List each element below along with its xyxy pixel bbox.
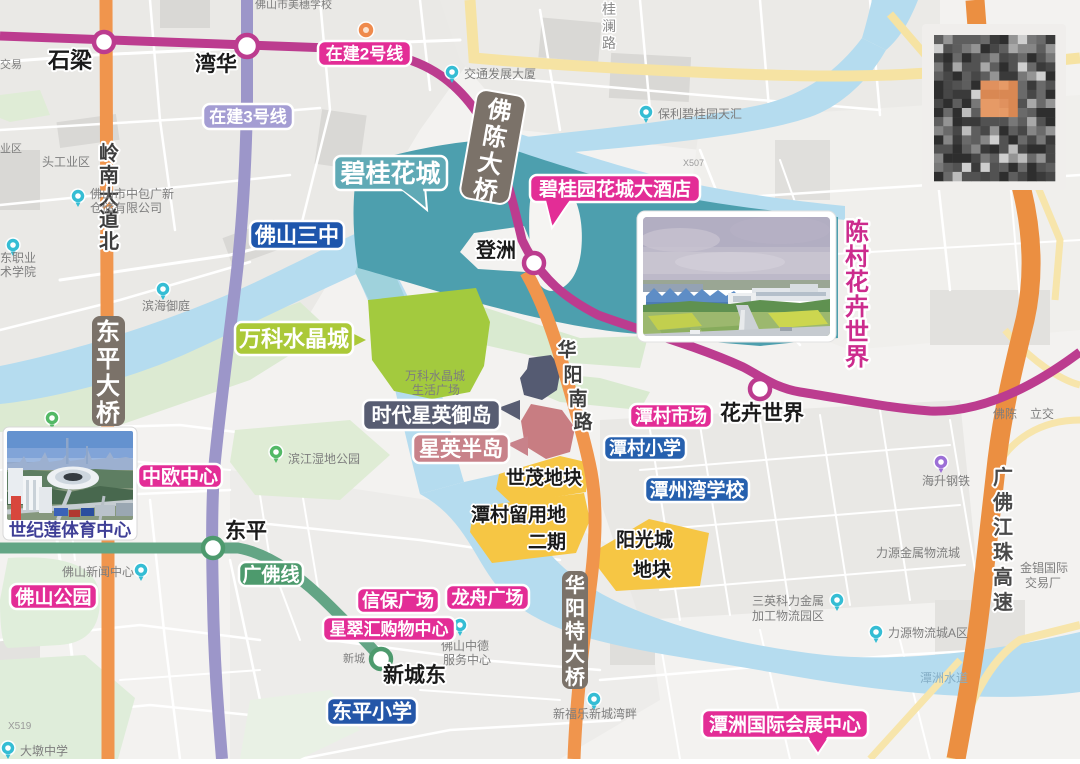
svg-text:交易: 交易 — [0, 57, 22, 71]
svg-text:佛陈: 佛陈 — [993, 406, 1017, 421]
svg-text:佛: 佛 — [992, 491, 1013, 514]
svg-text:阳: 阳 — [563, 364, 582, 386]
svg-text:世: 世 — [845, 319, 869, 346]
svg-text:路: 路 — [573, 410, 593, 433]
svg-text:佛: 佛 — [484, 96, 513, 127]
svg-text:界: 界 — [845, 344, 869, 371]
svg-text:广: 广 — [993, 465, 1013, 489]
svg-text:登洲: 登洲 — [475, 238, 516, 262]
svg-text:潭州湾学校: 潭州湾学校 — [649, 478, 745, 501]
svg-text:东平小学: 东平小学 — [332, 700, 412, 724]
svg-text:速: 速 — [993, 591, 1013, 614]
svg-text:村: 村 — [845, 244, 869, 271]
svg-text:南: 南 — [568, 388, 587, 410]
svg-text:北: 北 — [99, 230, 119, 253]
svg-text:力源物流城A区: 力源物流城A区 — [888, 626, 968, 640]
svg-text:平: 平 — [96, 346, 120, 373]
svg-text:桥: 桥 — [96, 400, 121, 427]
svg-text:佛山市美穗学校: 佛山市美穗学校 — [255, 0, 332, 11]
svg-text:特: 特 — [565, 619, 585, 643]
svg-text:佛山三中: 佛山三中 — [254, 224, 339, 248]
svg-text:时代星英御岛: 时代星英御岛 — [372, 403, 492, 427]
svg-text:三英科力金属: 三英科力金属 — [752, 593, 824, 608]
svg-text:东平: 东平 — [225, 519, 267, 543]
svg-text:潭村市场: 潭村市场 — [635, 405, 707, 426]
svg-text:南: 南 — [99, 164, 119, 187]
svg-text:X507: X507 — [683, 158, 704, 168]
svg-text:业区: 业区 — [0, 142, 22, 155]
svg-text:潭村小学: 潭村小学 — [609, 437, 681, 458]
svg-text:世茂地块: 世茂地块 — [506, 466, 583, 489]
svg-text:湾华: 湾华 — [195, 52, 237, 76]
svg-text:地块: 地块 — [633, 558, 672, 581]
svg-text:交易厂: 交易厂 — [1025, 575, 1061, 590]
svg-text:桥: 桥 — [565, 666, 586, 689]
svg-text:在建3号线: 在建3号线 — [209, 107, 286, 127]
svg-text:大: 大 — [96, 373, 120, 400]
svg-text:龙舟广场: 龙舟广场 — [452, 587, 524, 608]
svg-text:二期: 二期 — [528, 531, 566, 553]
svg-text:碧桂花城: 碧桂花城 — [339, 160, 440, 188]
svg-text:佛山新闻中心: 佛山新闻中心 — [62, 564, 134, 579]
svg-text:X519: X519 — [8, 721, 32, 732]
svg-text:东: 东 — [96, 318, 120, 346]
svg-text:在建2号线: 在建2号线 — [326, 44, 403, 64]
svg-text:金锠国际: 金锠国际 — [1020, 560, 1068, 575]
svg-text:高: 高 — [993, 565, 1013, 589]
svg-text:星翠汇购物中心: 星翠汇购物中心 — [330, 619, 449, 639]
svg-text:陈: 陈 — [845, 218, 869, 246]
svg-text:中欧中心: 中欧中心 — [142, 465, 218, 488]
svg-text:信保广场: 信保广场 — [362, 590, 434, 611]
svg-text:卉: 卉 — [845, 294, 869, 321]
svg-text:新福乐新城湾畔: 新福乐新城湾畔 — [553, 706, 637, 721]
svg-text:仓储有限公司: 仓储有限公司 — [90, 200, 162, 215]
svg-text:加工物流园区: 加工物流园区 — [752, 609, 824, 623]
svg-text:石梁: 石梁 — [47, 48, 92, 73]
svg-text:碧桂园花城大酒店: 碧桂园花城大酒店 — [538, 177, 691, 200]
svg-text:花卉世界: 花卉世界 — [720, 401, 804, 425]
svg-text:潭村留用地: 潭村留用地 — [471, 503, 566, 526]
svg-text:珠: 珠 — [993, 541, 1014, 564]
svg-text:大: 大 — [476, 149, 504, 180]
svg-text:岭: 岭 — [99, 141, 119, 165]
svg-text:佛山公园: 佛山公园 — [14, 585, 91, 608]
svg-text:广佛线: 广佛线 — [242, 563, 299, 586]
svg-text:立交: 立交 — [1030, 406, 1054, 421]
svg-text:花: 花 — [845, 269, 869, 296]
svg-text:江: 江 — [993, 516, 1013, 539]
svg-text:潭洲国际会展中心: 潭洲国际会展中心 — [709, 713, 861, 736]
svg-text:保利碧桂园天汇: 保利碧桂园天汇 — [658, 106, 742, 121]
svg-text:世纪莲体育中心: 世纪莲体育中心 — [9, 520, 132, 540]
svg-text:陈: 陈 — [480, 121, 508, 153]
svg-text:佛山市中包广新: 佛山市中包广新 — [90, 186, 174, 201]
svg-text:大: 大 — [565, 643, 585, 666]
svg-text:滨江湿地公园: 滨江湿地公园 — [288, 451, 360, 466]
svg-text:术学院: 术学院 — [0, 264, 36, 279]
svg-text:星英半岛: 星英半岛 — [419, 437, 503, 461]
svg-text:服务中心: 服务中心 — [443, 652, 491, 667]
svg-text:新城: 新城 — [343, 651, 365, 665]
svg-text:海升钢铁: 海升钢铁 — [922, 473, 970, 488]
svg-text:头工业区: 头工业区 — [42, 155, 90, 169]
svg-text:阳: 阳 — [565, 597, 585, 620]
svg-text:大墩中学: 大墩中学 — [20, 743, 68, 758]
svg-text:潭洲水道: 潭洲水道 — [920, 671, 968, 685]
svg-text:生活广场: 生活广场 — [412, 383, 460, 397]
svg-text:华: 华 — [565, 573, 585, 597]
svg-text:东职业: 东职业 — [0, 251, 36, 265]
svg-text:新城东: 新城东 — [383, 663, 446, 687]
svg-text:澜: 澜 — [602, 18, 616, 34]
svg-text:华: 华 — [557, 338, 576, 361]
svg-text:交通发展大厦: 交通发展大厦 — [464, 66, 536, 81]
svg-text:万科水晶城: 万科水晶城 — [405, 369, 465, 383]
svg-text:万科水晶城: 万科水晶城 — [238, 326, 349, 351]
svg-text:滨海御庭: 滨海御庭 — [142, 298, 190, 313]
svg-text:阳光城: 阳光城 — [616, 528, 673, 551]
svg-text:力源金属物流城: 力源金属物流城 — [876, 545, 960, 560]
svg-text:路: 路 — [602, 35, 616, 51]
svg-text:桂: 桂 — [602, 1, 616, 17]
